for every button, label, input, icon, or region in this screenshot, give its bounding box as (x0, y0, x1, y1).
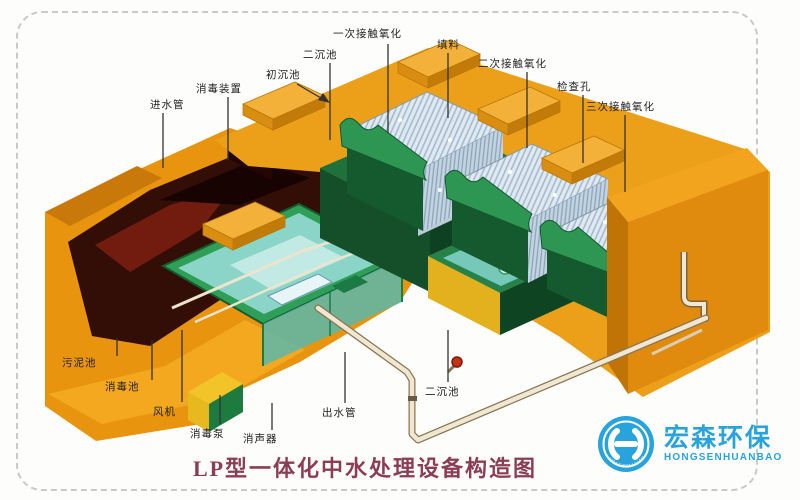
label-sludge-tank: 污泥池 (62, 355, 97, 370)
label-disinfection-device: 消毒装置 (196, 81, 242, 96)
logo-name-en: HONGSENHUANBAO (664, 452, 782, 463)
label-inlet-pipe: 进水管 (150, 97, 185, 112)
label-inspection-hole: 检查孔 (557, 79, 592, 94)
label-secondary-sedimentation-tank-top: 二沉池 (303, 47, 338, 62)
label-disinfection-pump: 消毒泵 (190, 426, 225, 441)
label-secondary-sedimentation-tank-bottom: 二沉池 (425, 384, 460, 399)
label-primary-contact-oxidation: 一次接触氧化 (333, 26, 402, 41)
valve-handwheel (452, 357, 462, 367)
diagram-title: LP型一体化中水处理设备构造图 (160, 451, 570, 483)
company-logo: HONGSENHUANBAO 宏森环保 HONGSENHUANBAO (596, 414, 782, 474)
logo-name-cn: 宏森环保 (664, 425, 782, 451)
logo-mark-icon: HONGSENHUANBAO (596, 414, 656, 474)
label-disinfection-tank: 消毒池 (105, 379, 140, 394)
label-outlet-pipe: 出水管 (322, 405, 357, 420)
label-packing: 填料 (437, 37, 460, 52)
label-silencer: 消声器 (243, 431, 278, 446)
diagram-page: 进水管 消毒装置 初沉池 二沉池 一次接触氧化 填料 二次接触氧化 检查孔 三次… (0, 0, 800, 500)
label-tertiary-contact-oxidation: 三次接触氧化 (586, 99, 655, 114)
label-secondary-contact-oxidation: 二次接触氧化 (478, 56, 547, 71)
label-blower: 风机 (153, 404, 176, 419)
label-primary-sedimentation-tank: 初沉池 (266, 67, 301, 82)
